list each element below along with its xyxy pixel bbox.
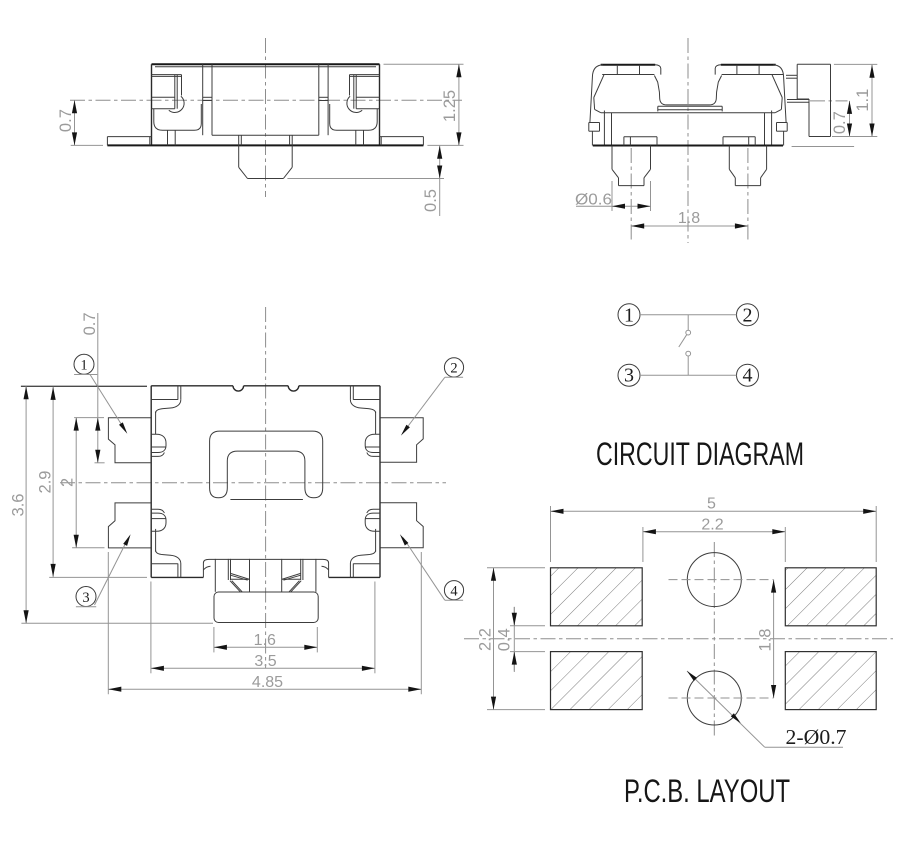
svg-text:CIRCUIT DIAGRAM: CIRCUIT DIAGRAM [596,436,804,472]
svg-text:5: 5 [707,495,716,512]
svg-text:0.5: 0.5 [422,189,440,212]
svg-text:3.6: 3.6 [10,494,28,517]
svg-text:2.9: 2.9 [37,471,55,494]
svg-text:3: 3 [82,590,89,606]
svg-text:0.4: 0.4 [496,628,514,651]
svg-text:1: 1 [80,358,87,374]
svg-text:1.8: 1.8 [678,210,700,227]
svg-text:1: 1 [624,304,634,326]
svg-text:1.6: 1.6 [254,632,276,649]
svg-text:3.5: 3.5 [254,653,276,670]
svg-text:4.85: 4.85 [252,674,283,691]
svg-text:Ø0.6: Ø0.6 [575,191,612,208]
svg-text:0.7: 0.7 [57,109,75,132]
svg-text:P.C.B. LAYOUT: P.C.B. LAYOUT [624,773,790,809]
svg-text:2.2: 2.2 [477,628,495,651]
svg-text:4: 4 [743,365,753,387]
svg-text:0.7: 0.7 [831,111,849,134]
svg-text:1.1: 1.1 [854,89,872,112]
svg-text:2: 2 [743,304,753,326]
svg-text:1.25: 1.25 [441,90,459,122]
svg-text:3: 3 [624,365,634,387]
svg-text:0.7: 0.7 [81,312,99,335]
svg-text:2: 2 [59,478,77,487]
svg-text:2: 2 [450,361,457,377]
svg-text:4: 4 [450,584,458,600]
svg-text:2-Ø0.7: 2-Ø0.7 [786,725,847,749]
svg-text:1.8: 1.8 [757,629,775,652]
svg-text:2.2: 2.2 [701,517,723,534]
